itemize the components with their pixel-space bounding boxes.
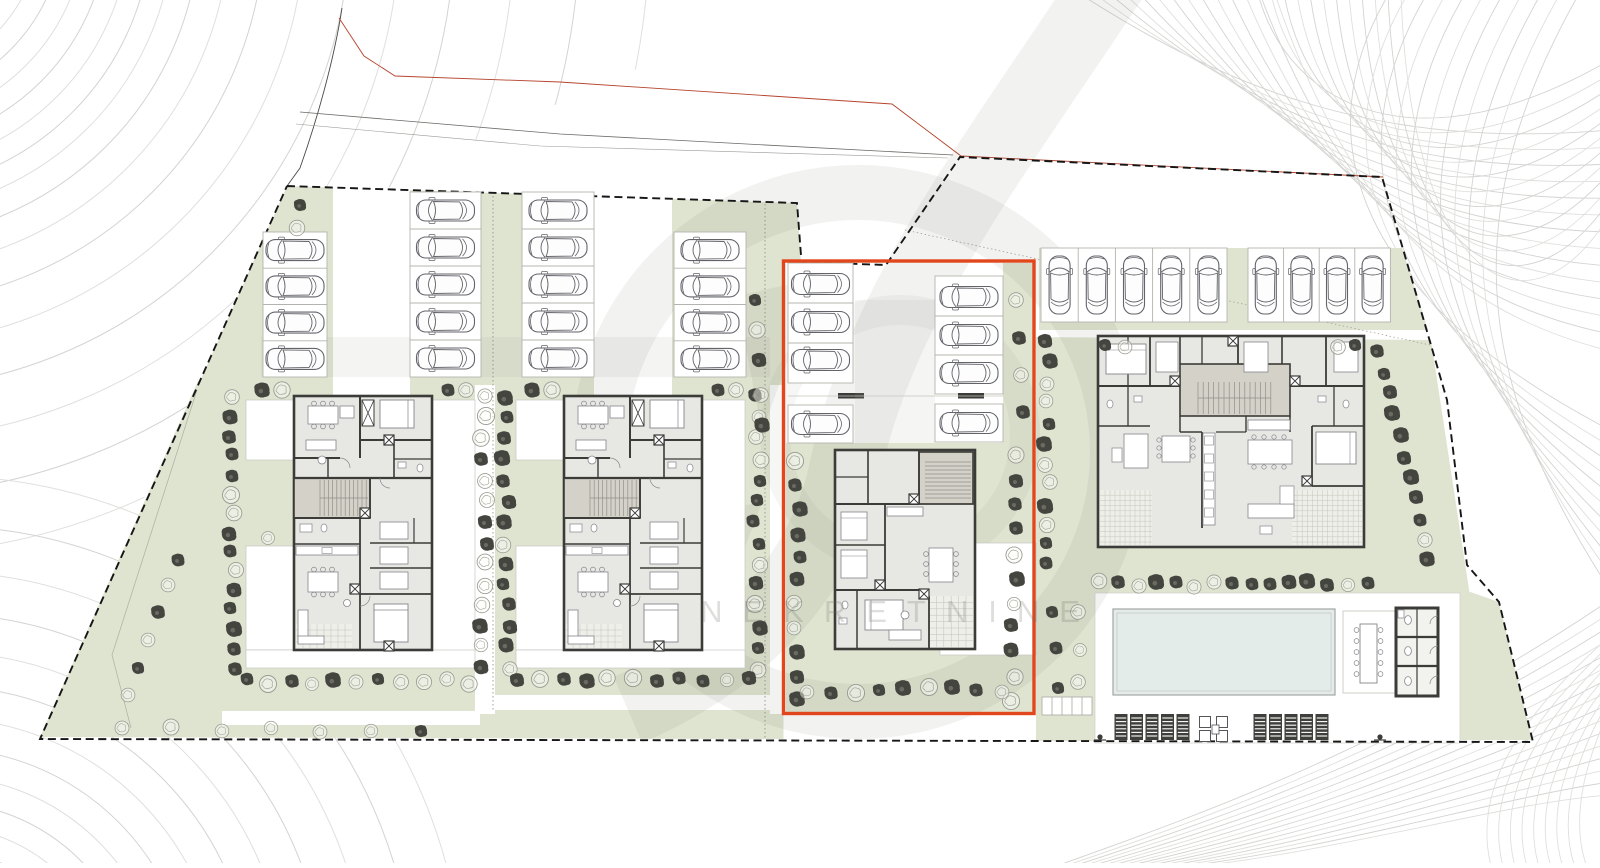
svg-text:NEKRETNINE: NEKRETNINE [700, 594, 1100, 629]
